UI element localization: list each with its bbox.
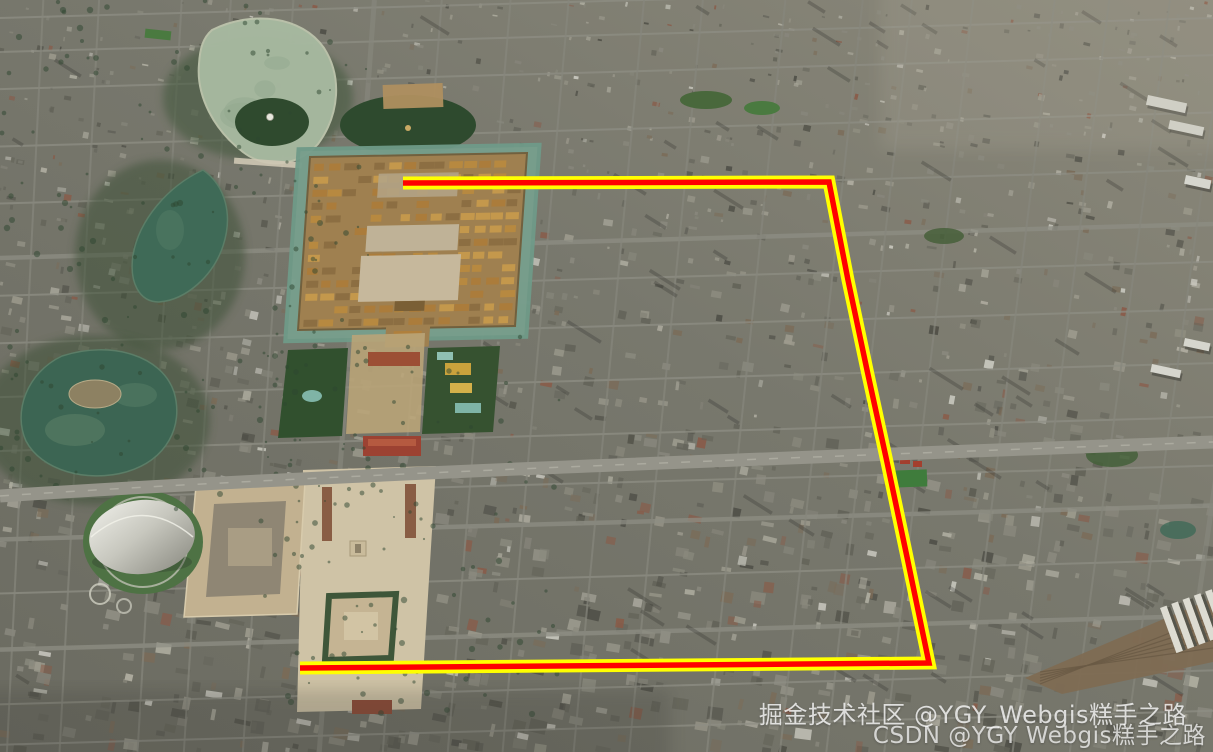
forbidden-city bbox=[283, 143, 542, 350]
map-canvas[interactable]: 掘金技术社区 @YGY_Webgis糕手之路 CSDN @YGY Webgis糕… bbox=[0, 0, 1213, 752]
satellite-scene bbox=[0, 0, 1213, 752]
